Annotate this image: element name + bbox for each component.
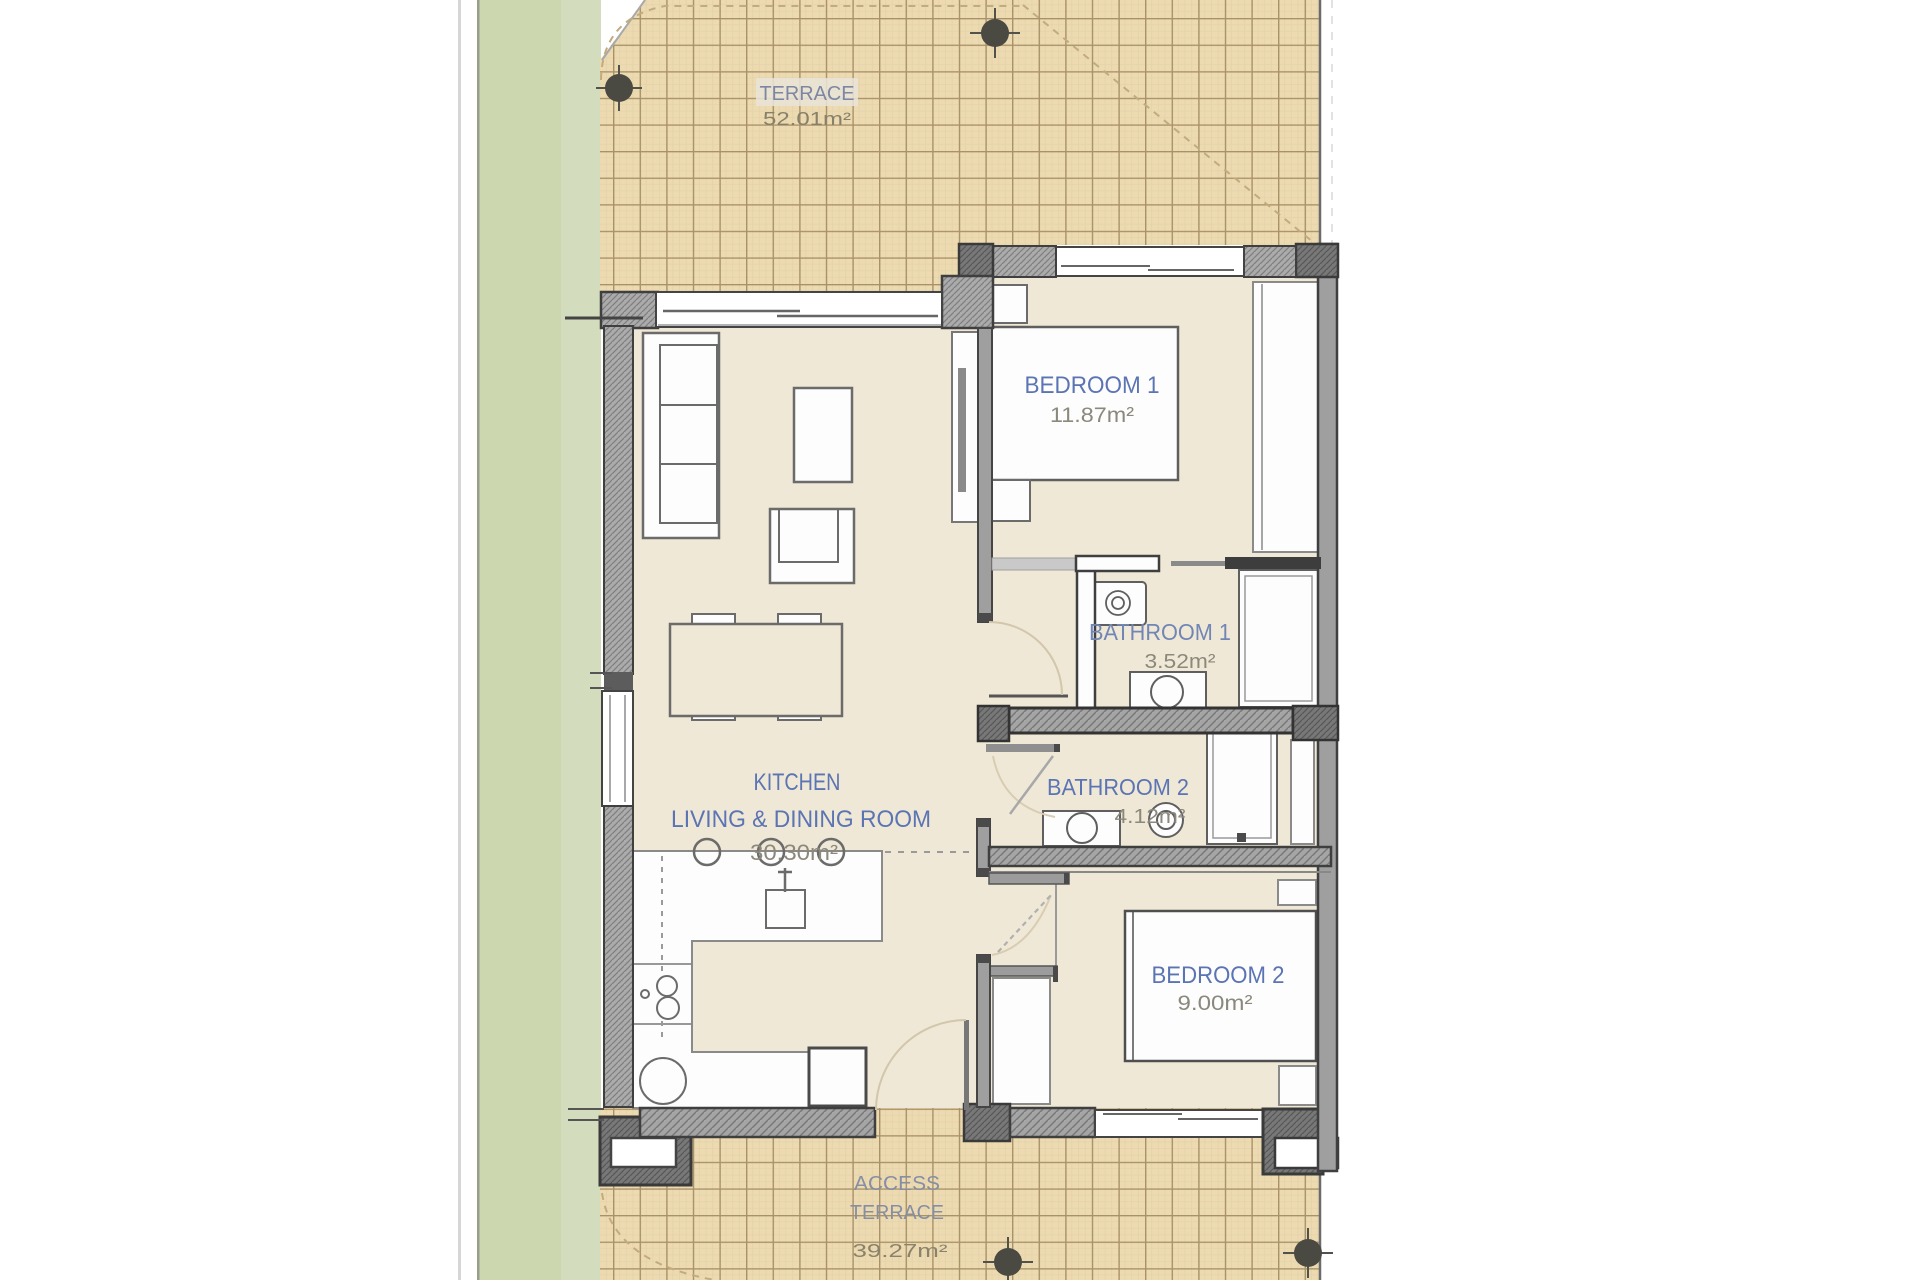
svg-text:30.30m²: 30.30m² xyxy=(750,840,838,865)
svg-text:BEDROOM 1: BEDROOM 1 xyxy=(1025,372,1160,399)
svg-text:TERRACE: TERRACE xyxy=(760,83,855,105)
svg-text:4.12m²: 4.12m² xyxy=(1115,806,1186,828)
svg-text:9.00m²: 9.00m² xyxy=(1178,992,1253,1015)
svg-text:ACCESS: ACCESS xyxy=(854,1173,940,1195)
svg-text:LIVING & DINING ROOM: LIVING & DINING ROOM xyxy=(671,806,931,833)
svg-text:TERRACE: TERRACE xyxy=(850,1202,944,1224)
svg-text:BATHROOM 2: BATHROOM 2 xyxy=(1047,774,1189,800)
svg-text:11.87m²: 11.87m² xyxy=(1050,404,1134,427)
svg-text:KITCHEN: KITCHEN xyxy=(754,769,841,796)
svg-text:3.52m²: 3.52m² xyxy=(1145,651,1216,673)
svg-text:39.27m²: 39.27m² xyxy=(853,1241,948,1261)
svg-text:BEDROOM 2: BEDROOM 2 xyxy=(1152,962,1285,989)
svg-text:52.01m²: 52.01m² xyxy=(763,109,851,129)
svg-text:BATHROOM 1: BATHROOM 1 xyxy=(1089,619,1231,645)
